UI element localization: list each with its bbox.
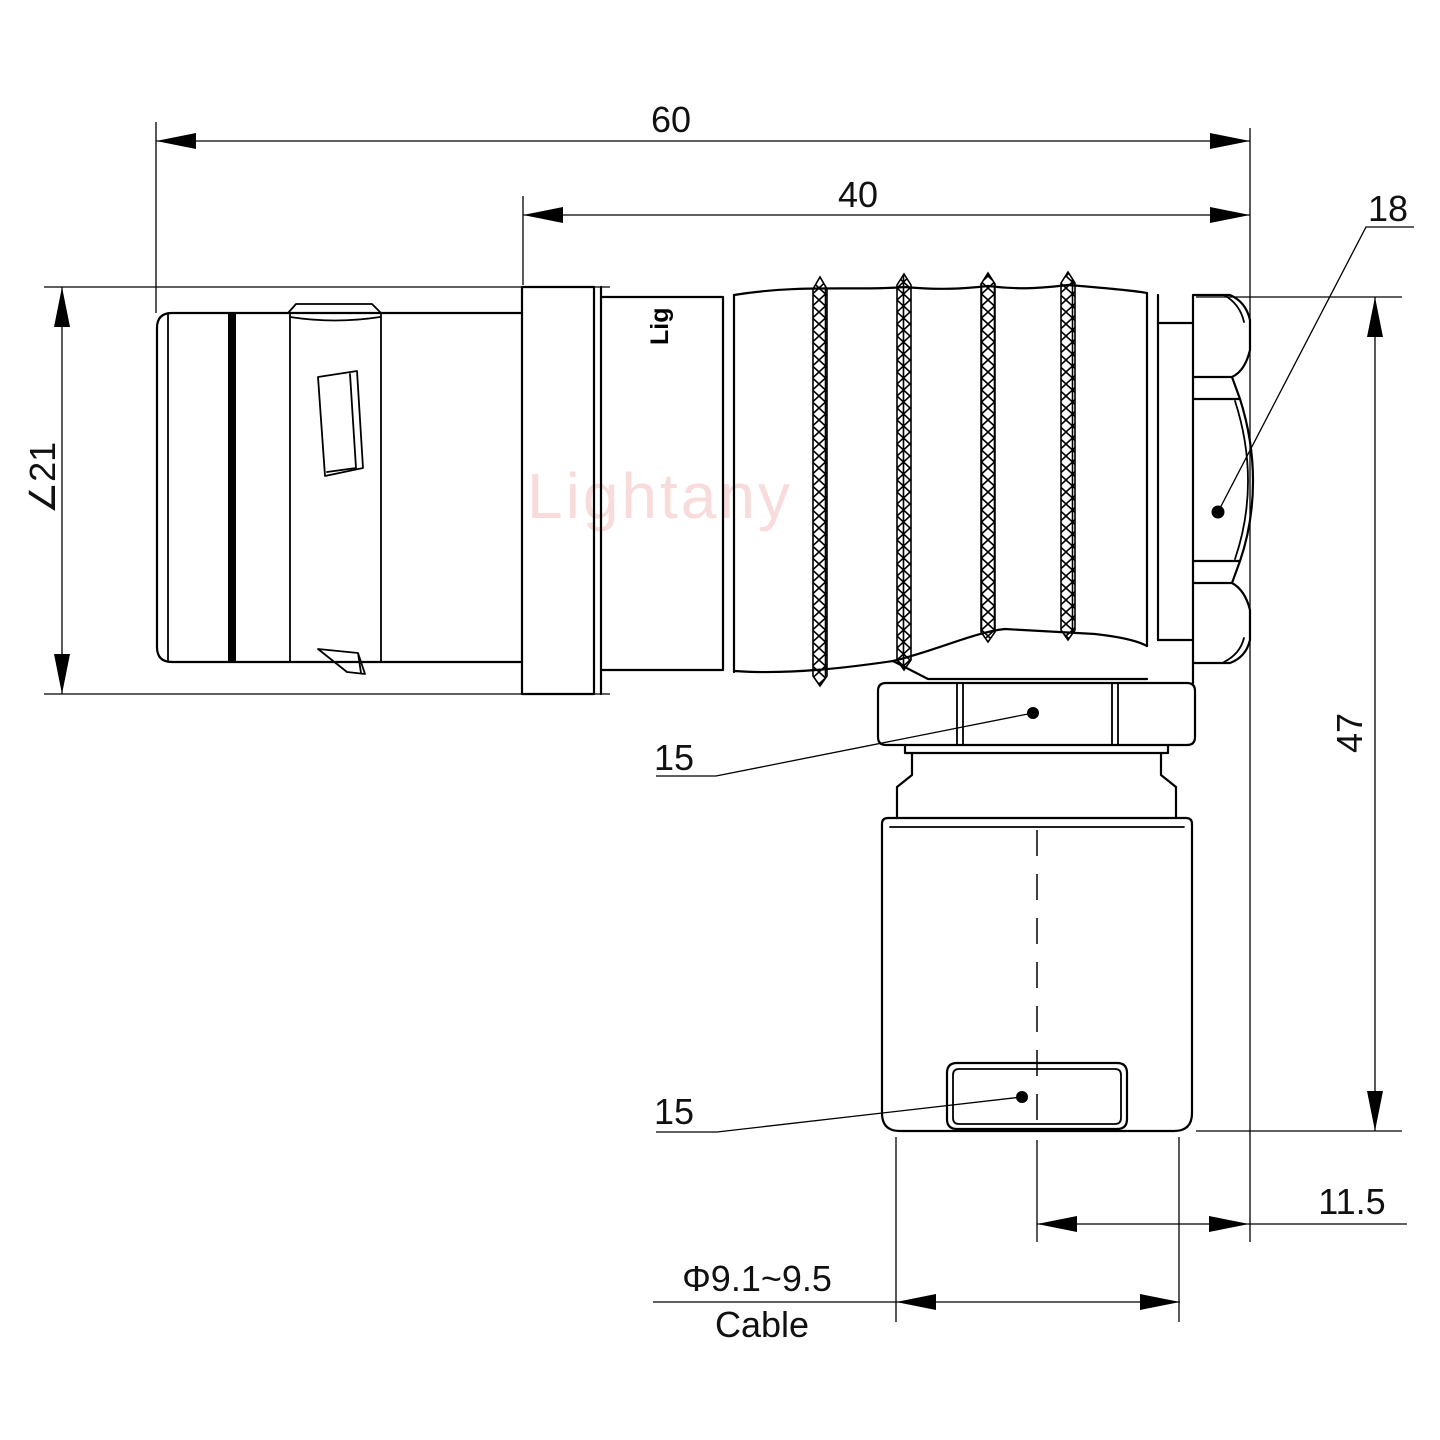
knurl-band-4 xyxy=(1061,272,1075,640)
sleeve-dark-band xyxy=(228,313,236,662)
dim-40-value: 40 xyxy=(838,174,878,215)
elbow-base xyxy=(893,661,1147,679)
gland-neck xyxy=(897,745,1176,818)
sleeve-top-key-arc xyxy=(290,317,380,321)
neck xyxy=(1158,323,1193,640)
watermark-text: Lightany xyxy=(527,460,793,532)
dim-cable-diameter: Φ9.1~9.5 xyxy=(682,1258,832,1299)
dimension-15-lower: 15 xyxy=(654,1091,1028,1132)
sleeve-key-slot-lines xyxy=(290,313,381,662)
drawing-page: Lightany Lig xyxy=(0,0,1440,1440)
knurl-bands xyxy=(813,272,1075,686)
elbow-and-gland xyxy=(878,661,1195,1131)
dimension-40: 40 xyxy=(523,174,1250,285)
hex-nut xyxy=(1193,295,1253,683)
knurl-band-3 xyxy=(981,273,995,642)
connector-right-angle-drawing: Lightany Lig xyxy=(0,0,1440,1440)
dimension-60: 60 xyxy=(156,99,1250,313)
latch-window-inner xyxy=(327,374,356,472)
release-sleeve-outline xyxy=(157,313,522,662)
dim-cable-label: Cable xyxy=(715,1304,809,1345)
sleeve-top-key xyxy=(288,304,381,313)
dim-18-value: 18 xyxy=(1368,188,1408,229)
dim-47-value: 47 xyxy=(1329,713,1370,753)
dim-60-value: 60 xyxy=(651,99,691,140)
barrel-brand-mark: Lig xyxy=(646,308,674,346)
knurl-section-bottom xyxy=(734,629,1147,672)
dimension-18: 18 xyxy=(1212,188,1415,519)
dim-11-5-value: 11.5 xyxy=(1318,1181,1385,1222)
dim-dia21-value: ∠21 xyxy=(22,442,63,514)
dim-15-upper-value: 15 xyxy=(654,737,694,778)
dimension-11-5: 11.5 xyxy=(1037,1140,1407,1242)
dimension-cable: Φ9.1~9.5 Cable xyxy=(653,1137,1180,1345)
dimension-15-upper: 15 xyxy=(654,707,1039,778)
knurl-section-top xyxy=(734,285,1158,646)
dimension-47: 47 xyxy=(1196,297,1402,1131)
dim-15-lower-value: 15 xyxy=(654,1091,694,1132)
knurl-band-1 xyxy=(813,277,827,686)
knurl-band-2 xyxy=(897,274,911,670)
